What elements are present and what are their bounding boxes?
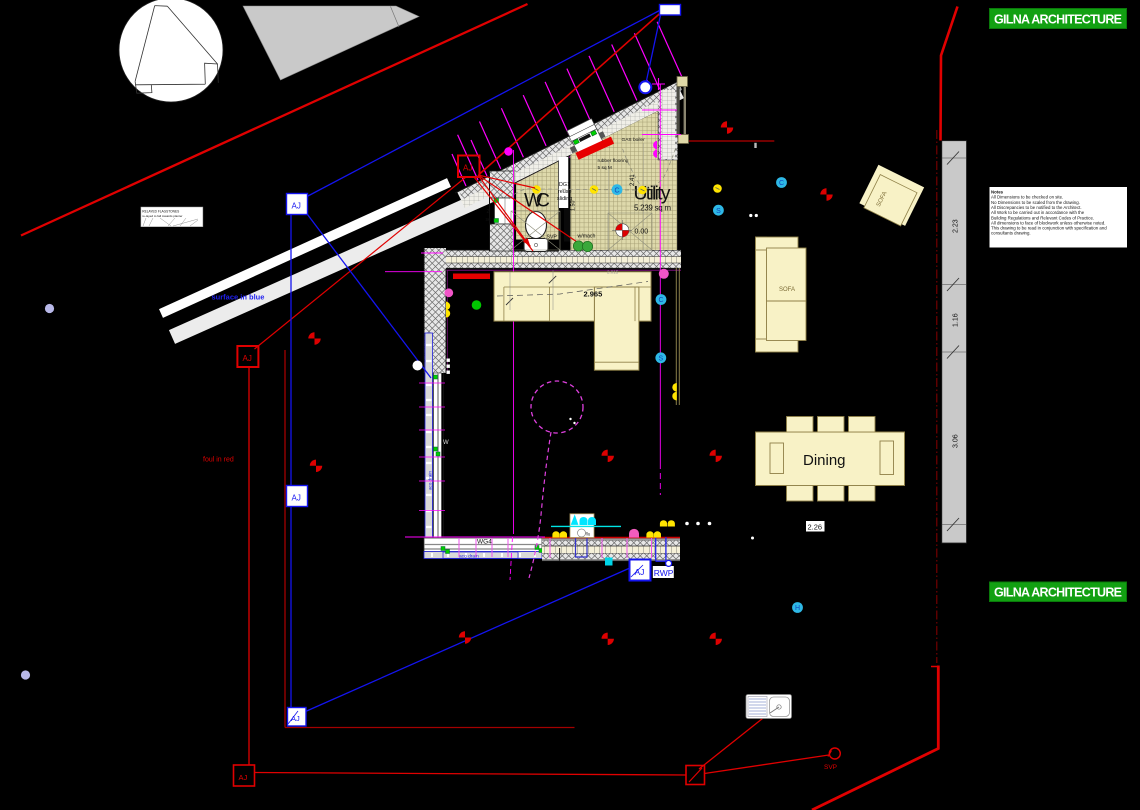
svg-text:DG1: DG1 xyxy=(559,182,570,188)
svg-text:se: se xyxy=(486,217,492,223)
svg-text:aco drain: aco drain xyxy=(428,471,433,490)
svg-text:2.26: 2.26 xyxy=(808,523,823,532)
svg-text:C: C xyxy=(779,180,784,187)
svg-text:flu: flu xyxy=(586,532,591,537)
svg-text:reuse: reuse xyxy=(558,189,572,195)
svg-text:Dining: Dining xyxy=(803,452,846,469)
svg-text:GAS boiler: GAS boiler xyxy=(622,137,646,143)
svg-text:2.015: 2.015 xyxy=(607,270,619,275)
svg-text:S: S xyxy=(716,208,721,215)
svg-text:AJ: AJ xyxy=(243,354,252,363)
svg-text:WG4: WG4 xyxy=(477,539,492,546)
svg-text:surface in blue: surface in blue xyxy=(212,293,265,302)
svg-text:1.50: 1.50 xyxy=(571,201,577,212)
svg-text:2: 2 xyxy=(487,209,490,215)
svg-text:GILNA ARCHITECTURE: GILNA ARCHITECTURE xyxy=(994,586,1122,600)
svg-text:re-layed to fall towards plant: re-layed to fall towards planter xyxy=(142,214,182,218)
svg-text:RWP: RWP xyxy=(654,568,674,578)
svg-text:H: H xyxy=(795,605,800,612)
svg-text:SVP: SVP xyxy=(824,764,837,771)
svg-text:3.06: 3.06 xyxy=(953,434,960,448)
svg-text:w/mach: w/mach xyxy=(578,234,596,240)
svg-text:AJ: AJ xyxy=(292,202,301,211)
svg-text:2.23: 2.23 xyxy=(953,219,960,233)
svg-text:5 sq M: 5 sq M xyxy=(598,165,612,171)
svg-text:rubber flooring: rubber flooring xyxy=(598,158,629,164)
svg-text:SOFA: SOFA xyxy=(779,287,795,293)
svg-text:SVP: SVP xyxy=(547,235,558,241)
svg-text:consultants drawing.: consultants drawing. xyxy=(991,231,1031,236)
svg-text:AJ: AJ xyxy=(239,773,248,782)
svg-text:S: S xyxy=(658,355,663,362)
svg-text:foul in red: foul in red xyxy=(203,457,234,464)
svg-text:AJ: AJ xyxy=(463,164,472,173)
svg-text:AJ: AJ xyxy=(292,494,301,503)
svg-text:5.239 sq m: 5.239 sq m xyxy=(634,204,671,213)
svg-text:2.965: 2.965 xyxy=(584,290,603,299)
svg-text:C: C xyxy=(614,187,619,194)
svg-text:C: C xyxy=(658,297,663,304)
svg-text:Utility: Utility xyxy=(634,183,671,205)
svg-text:W: W xyxy=(443,440,449,446)
svg-text:GILNA ARCHITECTURE: GILNA ARCHITECTURE xyxy=(994,13,1122,27)
svg-text:0.00: 0.00 xyxy=(635,229,649,236)
svg-text:1.16: 1.16 xyxy=(953,313,960,327)
svg-text:2.41: 2.41 xyxy=(630,174,636,186)
svg-text:RELAYED FLAGSTONES: RELAYED FLAGSTONES xyxy=(142,209,179,213)
